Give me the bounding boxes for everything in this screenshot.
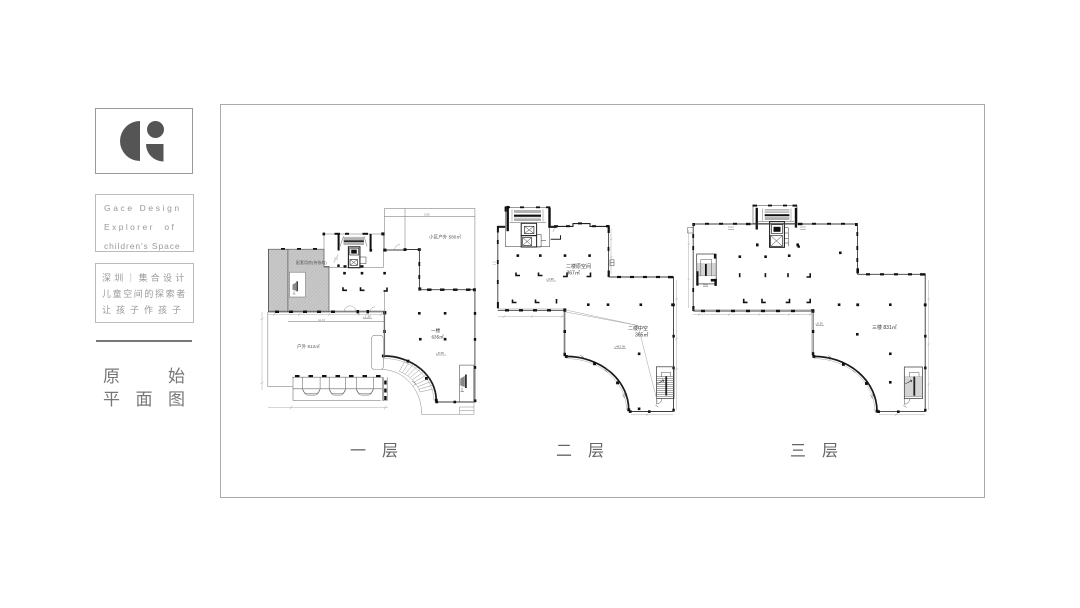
svg-text:1.20: 1.20 [365,315,371,319]
svg-text:三楼 831㎡: 三楼 831㎡ [872,324,897,331]
svg-text:8.35: 8.35 [438,351,444,355]
svg-text:635㎡: 635㎡ [432,334,445,340]
svg-text:367㎡: 367㎡ [567,270,580,277]
svg-text:二楼中空: 二楼中空 [628,325,648,332]
svg-text:8.35: 8.35 [817,322,823,326]
svg-text:463.36: 463.36 [616,345,626,349]
svg-text:3.95: 3.95 [548,277,554,281]
svg-text:配套用房(待协商): 配套用房(待协商) [296,259,327,265]
svg-text:二楼原空间: 二楼原空间 [566,263,591,270]
svg-text:小区户外 580㎡: 小区户外 580㎡ [429,234,461,241]
svg-text:一楼: 一楼 [431,327,441,334]
svg-text:365㎡: 365㎡ [635,332,648,339]
svg-text:5.88: 5.88 [424,213,430,217]
svg-text:户外 812㎡: 户外 812㎡ [297,343,320,350]
